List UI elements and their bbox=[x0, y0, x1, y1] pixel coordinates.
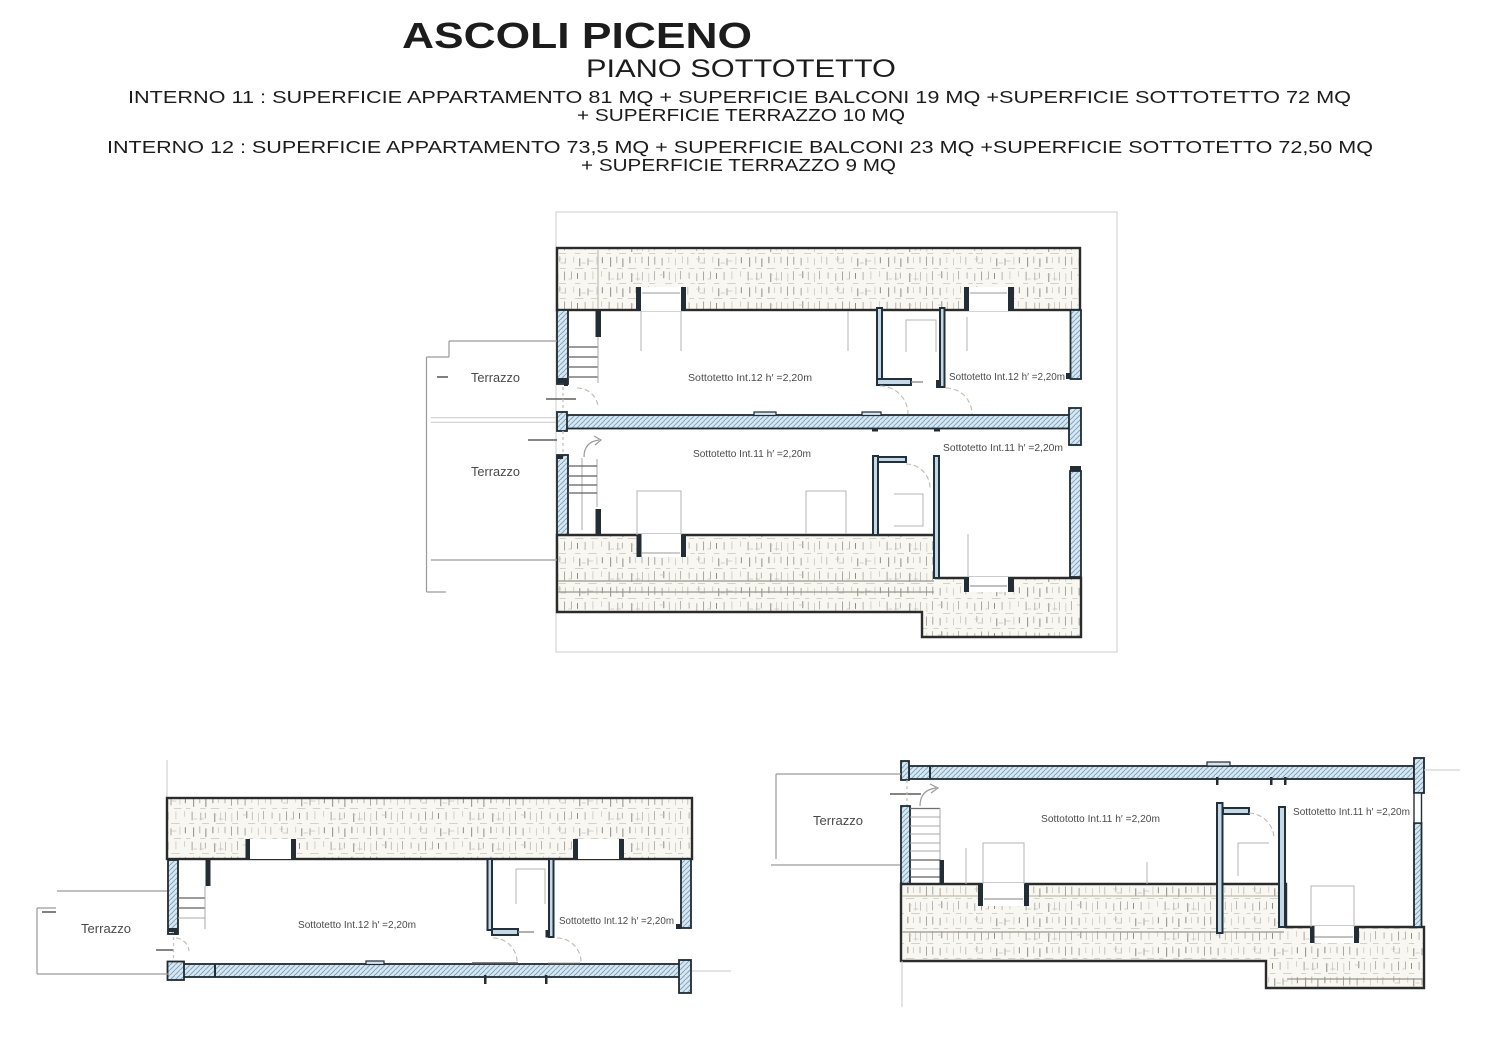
svg-text:Sottotetto Int.11 h′ =2,20m: Sottotetto Int.11 h′ =2,20m bbox=[943, 442, 1063, 454]
svg-text:Sottotetto Int.12 h′ =2,20m: Sottotetto Int.12 h′ =2,20m bbox=[559, 915, 674, 927]
svg-text:Sottototto Int.11 h′ =2,20m: Sottototto Int.11 h′ =2,20m bbox=[1041, 813, 1160, 825]
svg-text:Terrazzo: Terrazzo bbox=[471, 371, 520, 385]
svg-text:+ SUPERFICIE TERRAZZO 9 MQ: + SUPERFICIE TERRAZZO 9 MQ bbox=[581, 155, 896, 175]
svg-text:Sottotetto Int.12 h′ =2,20m: Sottotetto Int.12 h′ =2,20m bbox=[688, 372, 812, 384]
svg-text:Sottotetto Int.12 h′ =2,20m: Sottotetto Int.12 h′ =2,20m bbox=[949, 371, 1065, 383]
svg-text:Sottotetto Int.11 h′ =2,20m: Sottotetto Int.11 h′ =2,20m bbox=[1293, 806, 1410, 818]
svg-text:Sottotetto Int.12 h′ =2,20m: Sottotetto Int.12 h′ =2,20m bbox=[298, 919, 416, 931]
svg-text:Terrazzo: Terrazzo bbox=[81, 922, 131, 936]
svg-text:PIANO SOTTOTETTO: PIANO SOTTOTETTO bbox=[586, 55, 896, 83]
svg-text:ASCOLI PICENO: ASCOLI PICENO bbox=[402, 15, 752, 56]
svg-text:Sottotetto Int.11 h′ =2,20m: Sottotetto Int.11 h′ =2,20m bbox=[693, 448, 811, 460]
svg-text:+ SUPERFICIE TERRAZZO 10 MQ: + SUPERFICIE TERRAZZO 10 MQ bbox=[577, 105, 905, 125]
svg-text:Terrazzo: Terrazzo bbox=[813, 814, 863, 828]
svg-text:INTERNO 12 : SUPERFICIE APPAR: INTERNO 12 : SUPERFICIE APPARTAMENTO 73,… bbox=[107, 137, 1373, 157]
svg-text:INTERNO 11 : SUPERFICIE APPAR: INTERNO 11 : SUPERFICIE APPARTAMENTO 81 … bbox=[128, 87, 1351, 107]
svg-text:Terrazzo: Terrazzo bbox=[471, 465, 520, 479]
